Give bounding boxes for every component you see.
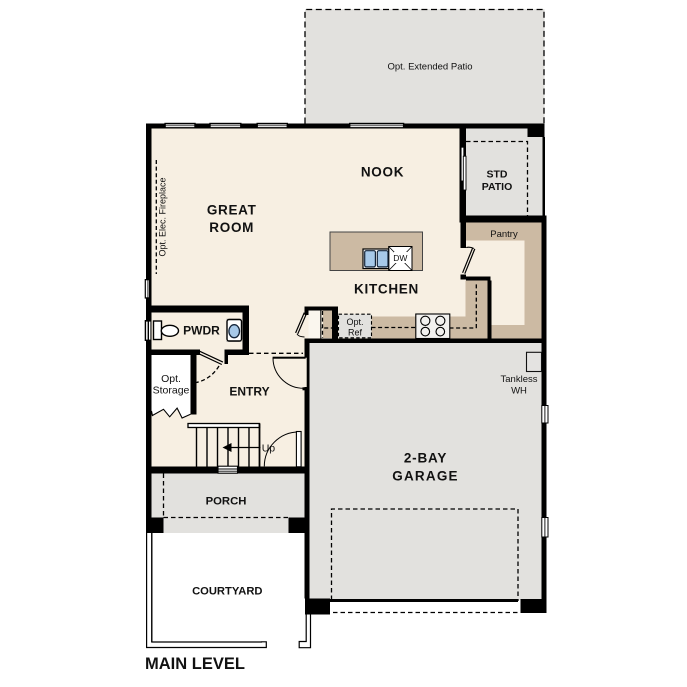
svg-text:MAIN LEVEL: MAIN LEVEL — [145, 655, 245, 673]
svg-text:GARAGE: GARAGE — [392, 469, 458, 484]
svg-text:Up: Up — [262, 443, 276, 455]
svg-text:Storage: Storage — [153, 385, 190, 397]
svg-text:Pantry: Pantry — [490, 229, 518, 240]
svg-text:Opt. Elec. Fireplace: Opt. Elec. Fireplace — [158, 177, 168, 256]
svg-text:2-BAY: 2-BAY — [404, 451, 447, 466]
svg-text:Opt. Extended Patio: Opt. Extended Patio — [387, 62, 472, 73]
svg-text:WH: WH — [511, 386, 527, 397]
svg-text:ENTRY: ENTRY — [229, 385, 269, 399]
svg-text:Opt.: Opt. — [346, 317, 363, 327]
svg-text:STD: STD — [487, 169, 508, 181]
svg-text:COURTYARD: COURTYARD — [192, 586, 262, 598]
svg-text:DW: DW — [393, 253, 407, 263]
svg-text:PATIO: PATIO — [482, 181, 513, 193]
svg-text:NOOK: NOOK — [361, 165, 404, 180]
svg-text:GREAT: GREAT — [207, 203, 257, 218]
svg-text:ROOM: ROOM — [209, 220, 254, 235]
svg-text:Ref: Ref — [348, 328, 363, 338]
svg-text:KITCHEN: KITCHEN — [354, 282, 419, 297]
svg-text:Opt.: Opt. — [161, 373, 181, 385]
svg-text:Tankless: Tankless — [501, 374, 538, 385]
svg-text:PWDR: PWDR — [183, 324, 220, 338]
svg-text:PORCH: PORCH — [206, 496, 247, 508]
